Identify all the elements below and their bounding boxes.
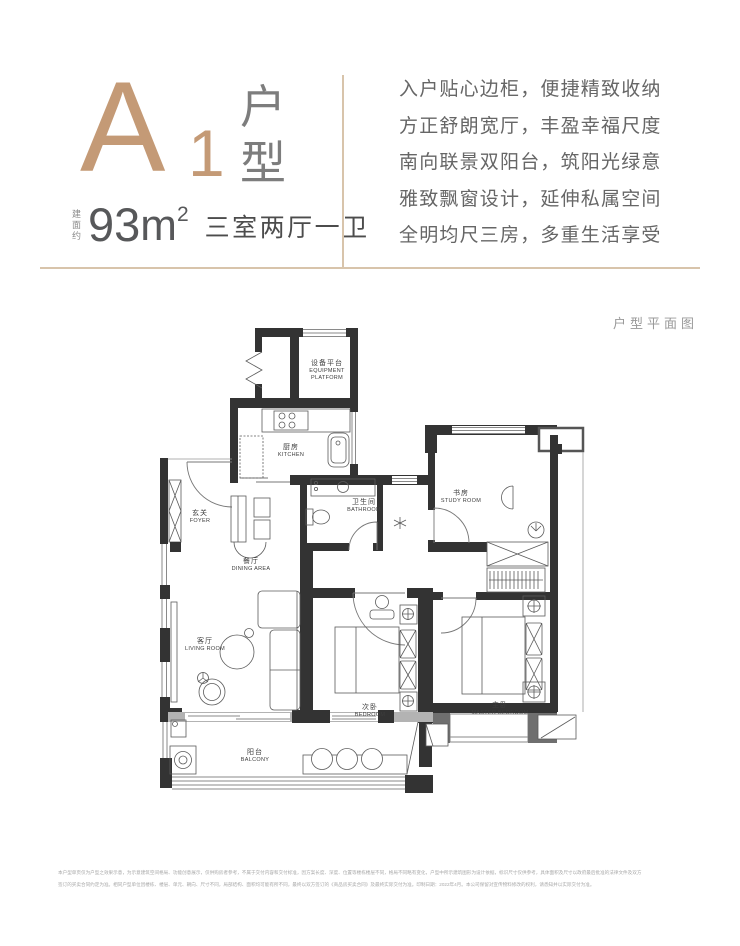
unit-word-xing: 型 <box>240 140 286 186</box>
unit-number: 1 <box>188 120 225 186</box>
area-row: 建面约 93 m 2 三室两厅一卫 <box>72 206 370 245</box>
area-value: 93 <box>88 206 140 245</box>
description-line: 南向联景双阳台，筑阳光绿意 <box>399 145 689 182</box>
area-unit: m <box>140 208 177 244</box>
disclaimer-line: 签订的买卖合同约定为准。相同户型单位因楼栋、楼层、单元、朝向、尺寸不同，局部结构… <box>58 879 698 891</box>
horizontal-rule <box>40 267 700 269</box>
description-block: 入户贴心边柜，便捷精致收纳 方正舒朗宽厅，丰盈幸福尺度 南向联景双阳台，筑阳光绿… <box>399 72 689 255</box>
floor-plan-drawing <box>150 318 590 796</box>
vertical-divider <box>342 75 344 268</box>
description-line: 入户贴心边柜，便捷精致收纳 <box>399 72 689 109</box>
unit-letter: A <box>80 64 165 192</box>
description-line: 全明均尺三房，多重生活享受 <box>399 218 689 255</box>
area-prefix: 建面约 <box>72 209 83 241</box>
layout-summary: 三室两厅一卫 <box>205 208 370 245</box>
unit-word-hu: 户 <box>240 84 286 130</box>
description-line: 雅致飘窗设计，延伸私属空间 <box>399 182 689 219</box>
floor-plan: 设备平台 EQUIPMENT PLATFORM 厨房 KITCHEN 卫生间 B… <box>150 318 590 796</box>
flyer-page: A 1 户 型 建面约 93 m 2 三室两厅一卫 入户贴心边柜，便捷精致收纳 … <box>0 0 740 946</box>
disclaimer: 本户型单页仅为户型之效果示意，为示意建筑空间格局、功能创意展示，仅供购房者参考，… <box>58 867 698 891</box>
plan-caption: 户型平面图 <box>613 313 698 332</box>
area-unit-sup: 2 <box>177 204 189 225</box>
description-line: 方正舒朗宽厅，丰盈幸福尺度 <box>399 109 689 146</box>
disclaimer-line: 本户型单页仅为户型之效果示意，为示意建筑空间格局、功能创意展示，仅供购房者参考，… <box>58 867 698 879</box>
